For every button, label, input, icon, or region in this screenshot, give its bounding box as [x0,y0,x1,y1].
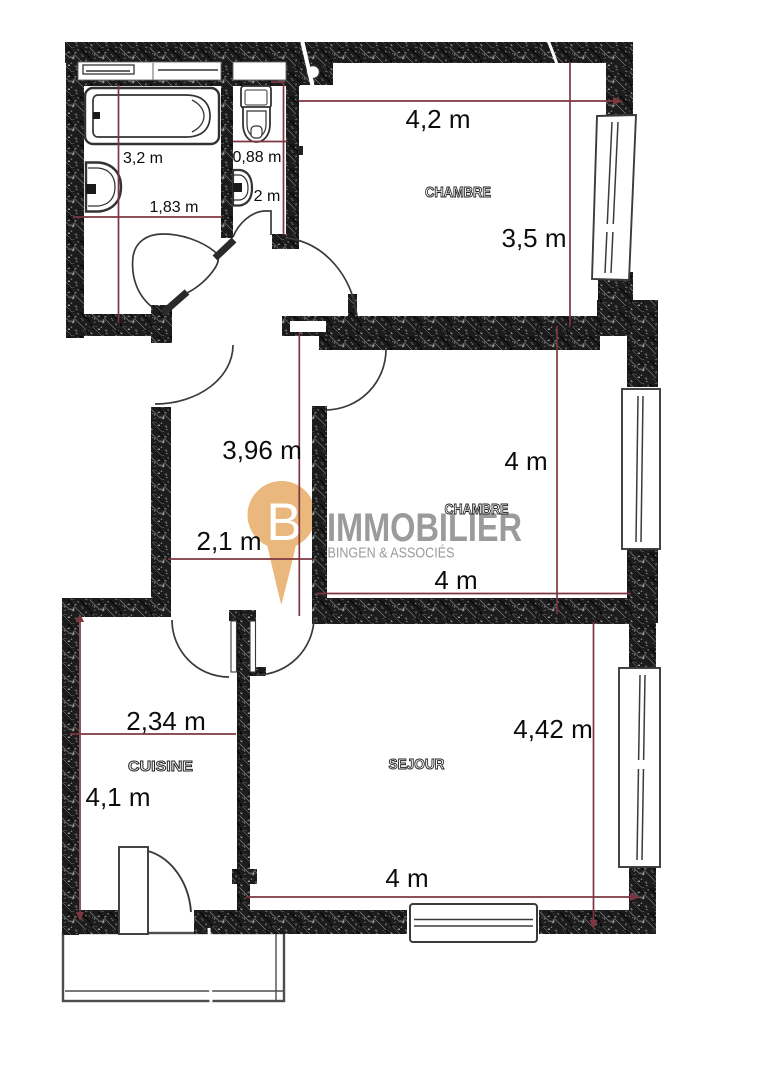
svg-text:CHAMBRE: CHAMBRE [445,501,509,518]
svg-text:4,42 m: 4,42 m [513,714,593,744]
svg-text:CUISINE: CUISINE [128,758,193,775]
svg-text:CHAMBRE: CHAMBRE [425,184,491,201]
svg-text:3,2 m: 3,2 m [123,150,163,167]
svg-text:4 m: 4 m [434,565,477,595]
svg-text:4,1 m: 4,1 m [85,782,150,812]
svg-text:3,96 m: 3,96 m [222,435,302,465]
svg-text:SEJOUR: SEJOUR [389,756,445,773]
svg-text:2,34 m: 2,34 m [126,706,206,736]
svg-text:B: B [266,493,301,552]
svg-text:4 m: 4 m [504,446,547,476]
svg-text:2,1 m: 2,1 m [196,526,261,556]
svg-text:4,2 m: 4,2 m [405,104,470,134]
svg-text:BINGEN & ASSOCIÉS: BINGEN & ASSOCIÉS [328,545,455,562]
svg-text:4 m: 4 m [385,863,428,893]
svg-text:0,88 m: 0,88 m [233,149,282,166]
svg-text:3,5 m: 3,5 m [501,223,566,253]
svg-text:1,83 m: 1,83 m [150,199,199,216]
svg-text:2 m: 2 m [254,188,281,205]
